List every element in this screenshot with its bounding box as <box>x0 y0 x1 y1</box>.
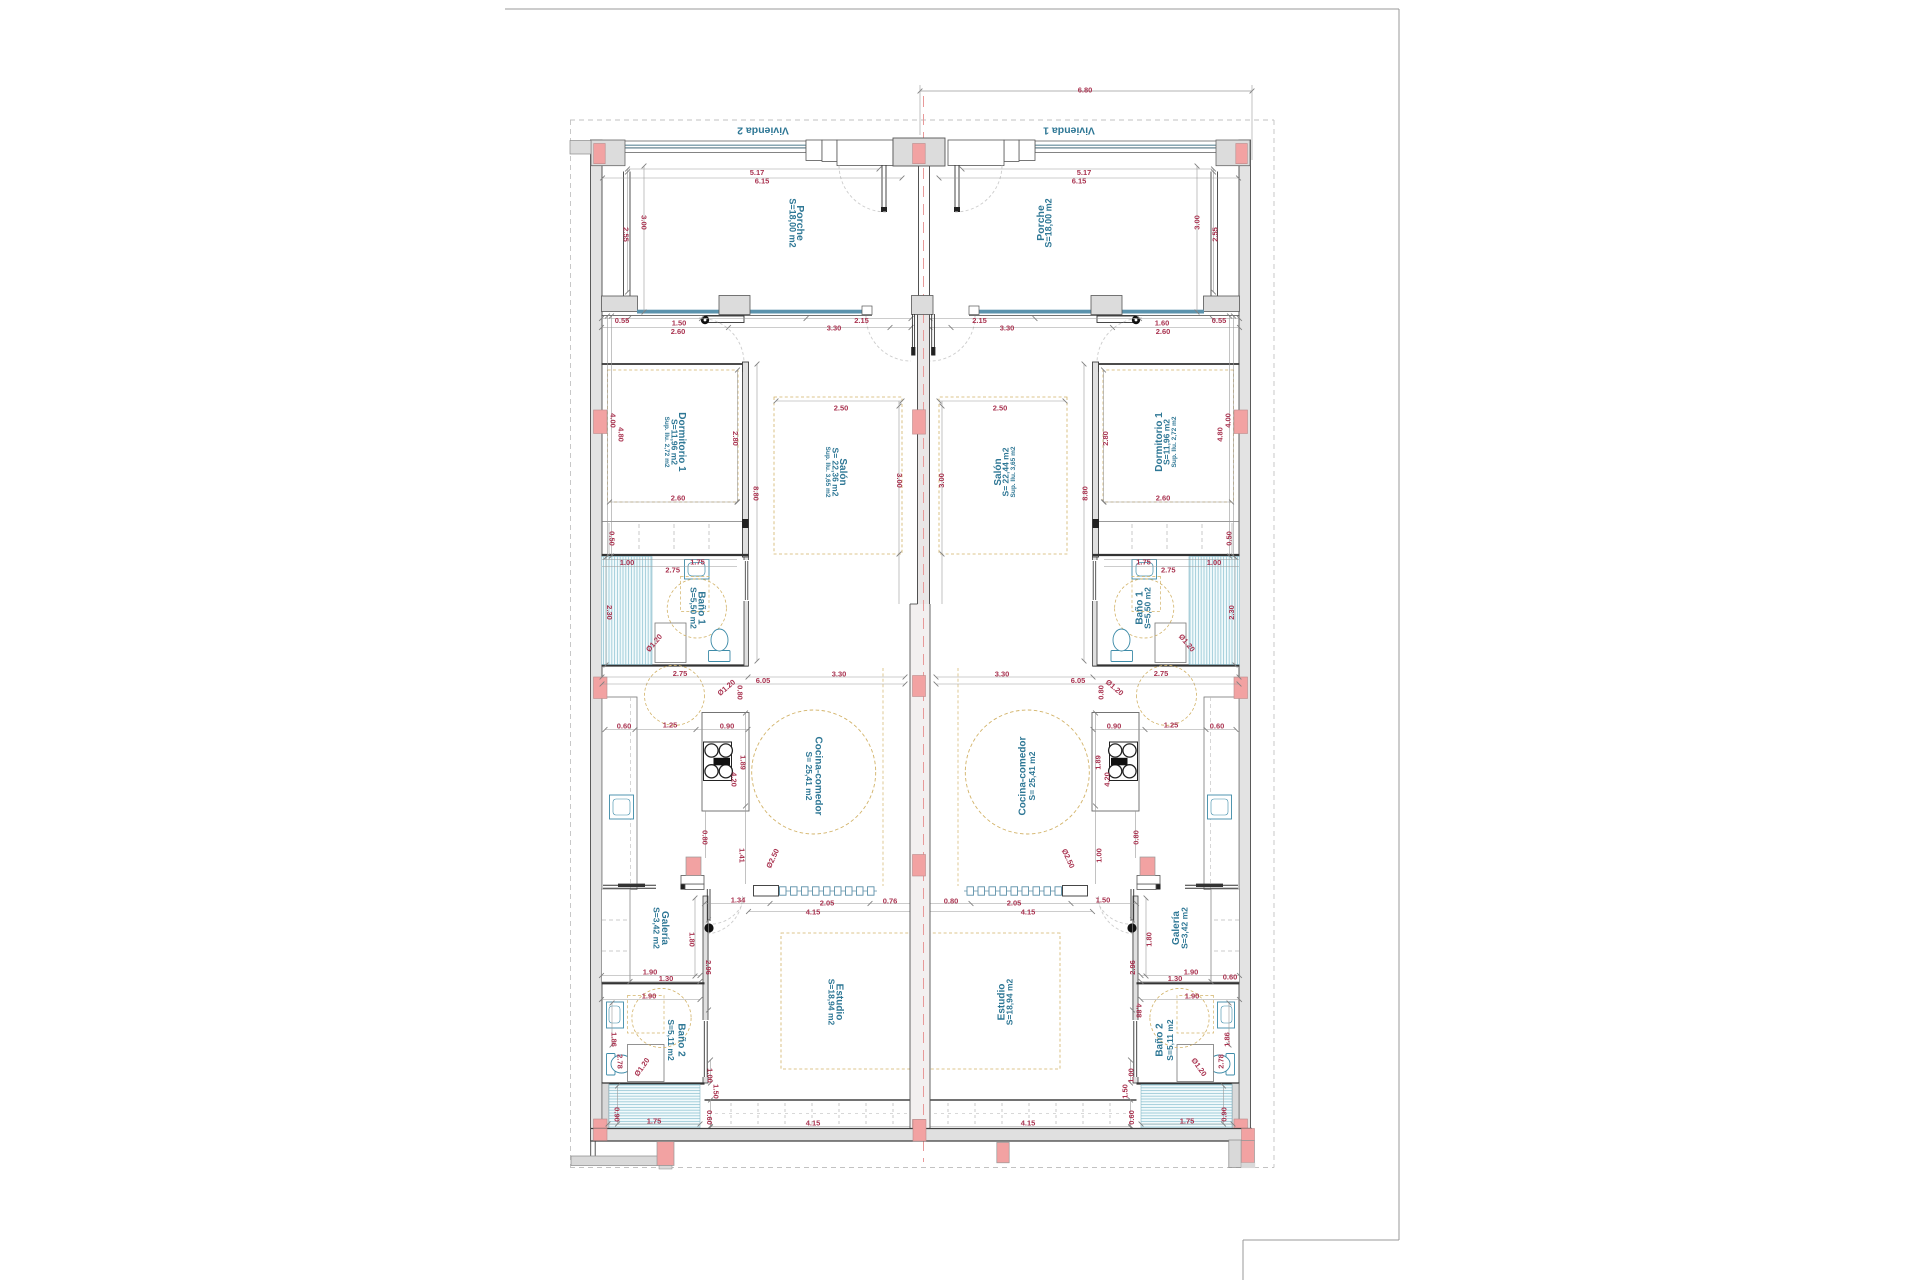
svg-text:0.80: 0.80 <box>1097 685 1106 700</box>
svg-text:1.00: 1.00 <box>1207 558 1222 567</box>
svg-text:6.15: 6.15 <box>755 177 770 186</box>
svg-text:2.05: 2.05 <box>820 899 835 908</box>
svg-text:0.50: 0.50 <box>1225 531 1234 546</box>
svg-text:S= 22,36 m2: S= 22,36 m2 <box>831 448 841 497</box>
svg-text:1.86: 1.86 <box>1223 1032 1232 1047</box>
svg-text:Vivienda 1: Vivienda 1 <box>1043 125 1095 137</box>
svg-text:3.30: 3.30 <box>832 670 847 679</box>
svg-text:2.15: 2.15 <box>972 316 987 325</box>
svg-text:2.15: 2.15 <box>854 316 869 325</box>
svg-text:0.80: 0.80 <box>944 897 959 906</box>
svg-text:S= 25,41 m2: S= 25,41 m2 <box>804 752 814 801</box>
svg-text:Vivienda 2: Vivienda 2 <box>737 125 789 137</box>
svg-text:2.50: 2.50 <box>993 404 1008 413</box>
svg-text:Sup. Ilu. 2,72 m2: Sup. Ilu. 2,72 m2 <box>663 417 670 468</box>
svg-text:0.60: 0.60 <box>705 1110 714 1125</box>
svg-text:1.25: 1.25 <box>1164 721 1179 730</box>
svg-text:2.75: 2.75 <box>673 669 688 678</box>
svg-text:0.90: 0.90 <box>1220 1107 1229 1122</box>
svg-text:0.55: 0.55 <box>1212 316 1227 325</box>
svg-text:1.00: 1.00 <box>1127 1068 1136 1083</box>
svg-text:6.05: 6.05 <box>1071 676 1086 685</box>
svg-text:Sup. Ilu. 3,65 m2: Sup. Ilu. 3,65 m2 <box>1010 446 1017 497</box>
svg-text:4.00: 4.00 <box>608 413 617 428</box>
svg-text:6.15: 6.15 <box>1072 177 1087 186</box>
svg-text:3.30: 3.30 <box>995 670 1010 679</box>
svg-text:2.50: 2.50 <box>834 404 849 413</box>
svg-text:2.05: 2.05 <box>1007 899 1022 908</box>
svg-text:1.90: 1.90 <box>1185 992 1200 1001</box>
svg-text:6.80: 6.80 <box>1078 86 1093 95</box>
svg-text:2.78: 2.78 <box>615 1054 624 1069</box>
svg-text:1.80: 1.80 <box>687 932 696 947</box>
svg-text:1.30: 1.30 <box>659 974 674 983</box>
svg-text:3.30: 3.30 <box>827 324 842 333</box>
svg-text:2.60: 2.60 <box>671 327 686 336</box>
svg-text:1.90: 1.90 <box>642 992 657 1001</box>
svg-text:0.90: 0.90 <box>1107 722 1122 731</box>
svg-text:4.15: 4.15 <box>806 1119 821 1128</box>
svg-text:4.00: 4.00 <box>1224 413 1233 428</box>
svg-text:3.00: 3.00 <box>1193 215 1202 230</box>
svg-text:3.30: 3.30 <box>1000 324 1015 333</box>
svg-text:1.89: 1.89 <box>1094 755 1103 770</box>
svg-text:S=18,00 m2: S=18,00 m2 <box>788 198 798 247</box>
svg-text:0.60: 0.60 <box>1210 722 1225 731</box>
svg-text:1.86: 1.86 <box>609 1032 618 1047</box>
svg-text:0.60: 0.60 <box>617 722 632 731</box>
svg-text:S=3,42 m2: S=3,42 m2 <box>652 907 662 949</box>
svg-text:2.60: 2.60 <box>1156 327 1171 336</box>
svg-text:0.90: 0.90 <box>720 722 735 731</box>
svg-text:0.90: 0.90 <box>612 1107 621 1122</box>
svg-text:1.75: 1.75 <box>1180 1117 1195 1126</box>
svg-text:1.00: 1.00 <box>705 1068 714 1083</box>
svg-text:1.00: 1.00 <box>1095 848 1104 863</box>
svg-text:2.96: 2.96 <box>704 960 713 975</box>
svg-text:0.76: 0.76 <box>883 897 898 906</box>
svg-text:1.75: 1.75 <box>1136 558 1151 567</box>
svg-text:2.75: 2.75 <box>1154 669 1169 678</box>
svg-text:2.75: 2.75 <box>665 566 680 575</box>
svg-text:1.89: 1.89 <box>738 755 747 770</box>
svg-text:0.80: 0.80 <box>700 830 709 845</box>
svg-text:2.30: 2.30 <box>1227 605 1236 620</box>
svg-text:S= 22,44 m2: S= 22,44 m2 <box>1000 447 1010 496</box>
svg-text:4.88: 4.88 <box>1135 1003 1144 1018</box>
svg-text:4.15: 4.15 <box>1021 908 1036 917</box>
svg-text:3.00: 3.00 <box>895 473 904 488</box>
svg-text:S=18,00 m2: S=18,00 m2 <box>1043 198 1053 247</box>
svg-text:1.75: 1.75 <box>690 558 705 567</box>
svg-text:S=18,94 m2: S=18,94 m2 <box>1004 978 1014 1025</box>
svg-text:S=18,94 m2: S=18,94 m2 <box>827 979 837 1026</box>
svg-text:0.80: 0.80 <box>735 685 744 700</box>
svg-text:S= 25,41 m2: S= 25,41 m2 <box>1027 751 1037 800</box>
svg-text:4.15: 4.15 <box>806 908 821 917</box>
svg-text:4.80: 4.80 <box>1216 427 1225 442</box>
svg-text:2.30: 2.30 <box>605 605 614 620</box>
svg-text:2.80: 2.80 <box>1101 431 1110 446</box>
svg-text:2.60: 2.60 <box>671 494 686 503</box>
svg-text:1.50: 1.50 <box>1121 1084 1130 1099</box>
svg-text:1.30: 1.30 <box>1168 974 1183 983</box>
svg-text:2.80: 2.80 <box>731 431 740 446</box>
svg-text:0.60: 0.60 <box>1127 1110 1136 1125</box>
svg-text:0.80: 0.80 <box>1132 830 1141 845</box>
svg-text:2.60: 2.60 <box>1156 494 1171 503</box>
svg-text:1.75: 1.75 <box>647 1117 662 1126</box>
svg-text:8.80: 8.80 <box>751 486 760 501</box>
svg-text:2.96: 2.96 <box>1128 960 1137 975</box>
svg-text:6.05: 6.05 <box>756 676 771 685</box>
svg-text:3.00: 3.00 <box>937 473 946 488</box>
svg-text:1.25: 1.25 <box>663 721 678 730</box>
svg-text:S=3,42 m2: S=3,42 m2 <box>1179 907 1189 949</box>
svg-text:Sup. Ilu. 3,65 m2: Sup. Ilu. 3,65 m2 <box>824 447 831 498</box>
svg-text:0.60: 0.60 <box>1223 973 1238 982</box>
svg-text:1.50: 1.50 <box>711 1084 720 1099</box>
svg-text:4.80: 4.80 <box>616 427 625 442</box>
svg-text:2.78: 2.78 <box>1217 1054 1226 1069</box>
svg-text:4.15: 4.15 <box>1021 1119 1036 1128</box>
svg-text:8.80: 8.80 <box>1081 486 1090 501</box>
svg-text:1.50: 1.50 <box>1096 896 1111 905</box>
svg-text:4.20: 4.20 <box>729 772 738 787</box>
svg-text:2.55: 2.55 <box>1211 227 1220 242</box>
svg-text:0.55: 0.55 <box>615 316 630 325</box>
svg-text:0.50: 0.50 <box>607 531 616 546</box>
svg-text:1.80: 1.80 <box>1145 932 1154 947</box>
svg-text:3.00: 3.00 <box>639 215 648 230</box>
svg-text:S=5,11 m2: S=5,11 m2 <box>666 1019 676 1061</box>
svg-text:4.20: 4.20 <box>1103 772 1112 787</box>
svg-text:S=5,50 m2: S=5,50 m2 <box>689 587 699 629</box>
svg-text:2.75: 2.75 <box>1161 566 1176 575</box>
svg-text:Sup. Ilu. 2,72 m2: Sup. Ilu. 2,72 m2 <box>1171 416 1178 467</box>
svg-text:S=5,11 m2: S=5,11 m2 <box>1165 1019 1175 1061</box>
svg-text:1.00: 1.00 <box>620 558 635 567</box>
svg-text:S=5,50 m2: S=5,50 m2 <box>1142 587 1152 629</box>
svg-text:1.34: 1.34 <box>731 896 746 905</box>
svg-text:1.90: 1.90 <box>1184 968 1199 977</box>
svg-text:2.55: 2.55 <box>621 227 630 242</box>
svg-text:1.41: 1.41 <box>737 848 746 863</box>
svg-text:1.90: 1.90 <box>643 968 658 977</box>
